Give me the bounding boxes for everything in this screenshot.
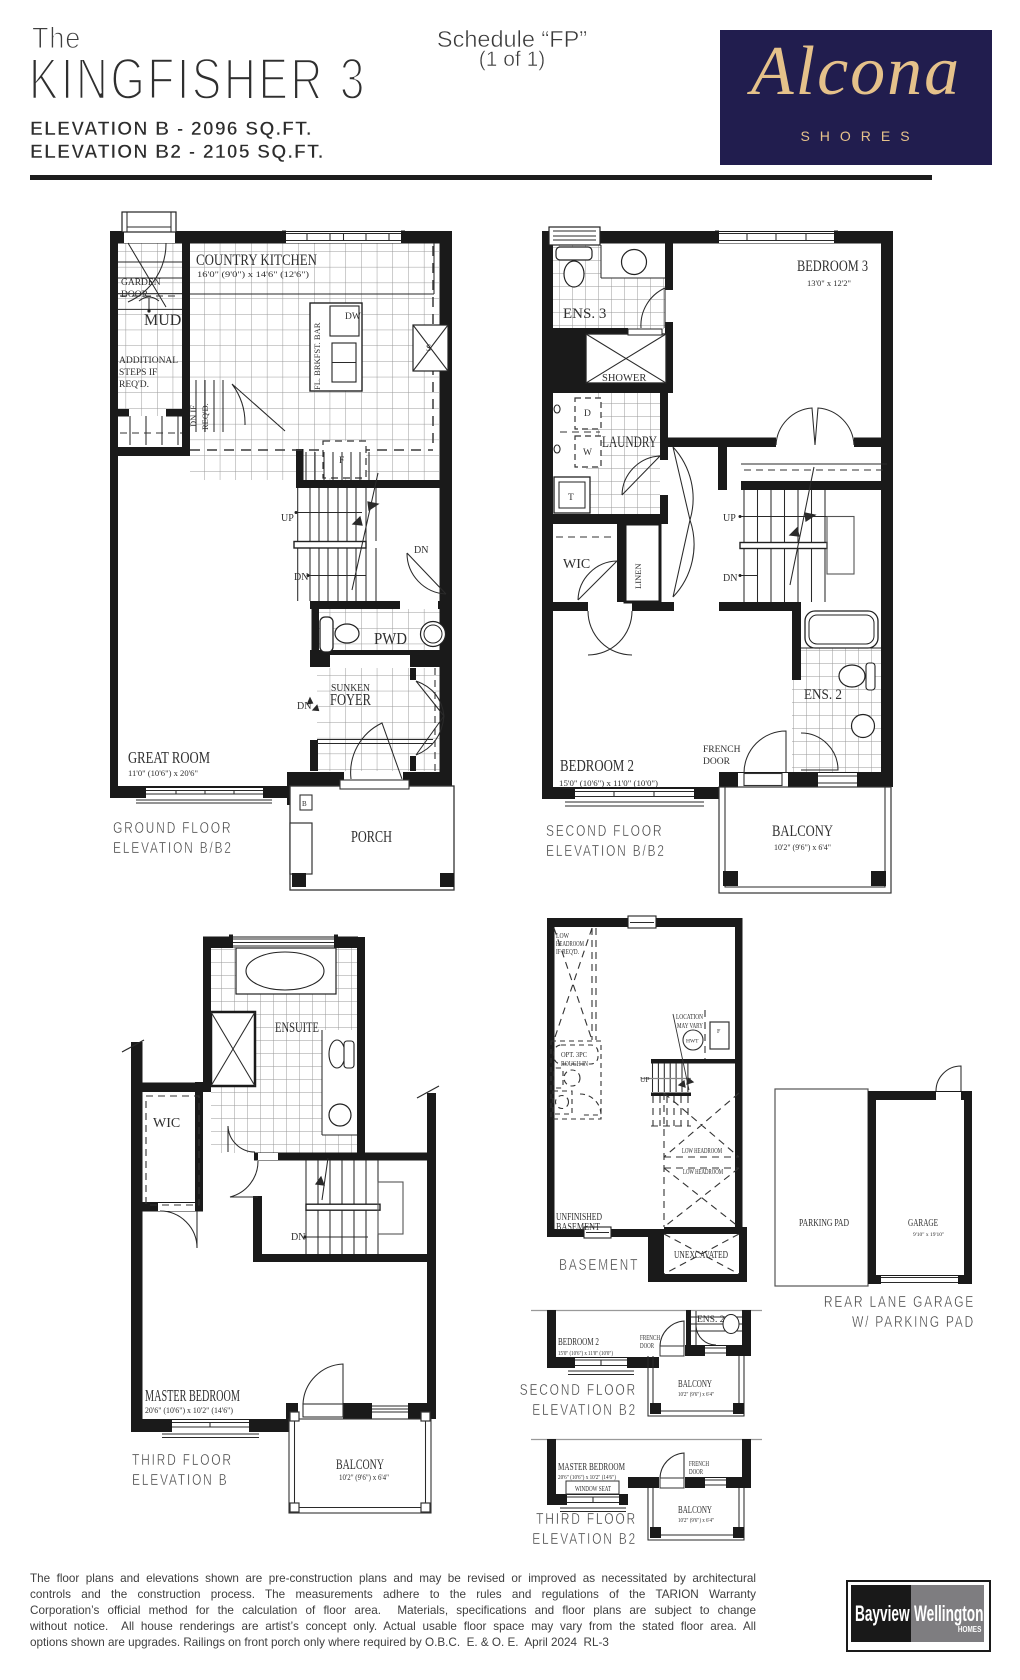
svg-text:9'10" x 19'10": 9'10" x 19'10"	[913, 1232, 944, 1238]
svg-text:T: T	[568, 493, 574, 503]
svg-text:BEDROOM 2: BEDROOM 2	[558, 1337, 599, 1348]
svg-text:10'2" (9'6") x 6'4": 10'2" (9'6") x 6'4"	[774, 842, 831, 852]
svg-text:ADDITIONAL: ADDITIONAL	[119, 356, 178, 366]
svg-text:PARKING PAD: PARKING PAD	[799, 1218, 849, 1229]
svg-text:UNEXCAVATED: UNEXCAVATED	[674, 1250, 728, 1261]
svg-text:B: B	[302, 800, 307, 808]
svg-text:HEADROOM: HEADROOM	[556, 940, 585, 948]
svg-text:SHOWER: SHOWER	[602, 373, 646, 384]
svg-text:OPT. 3PC: OPT. 3PC	[561, 1050, 587, 1059]
svg-text:DW: DW	[345, 312, 361, 322]
svg-text:WIC: WIC	[563, 557, 590, 572]
svg-text:20'6" (10'6") x 10'2" (14'6"): 20'6" (10'6") x 10'2" (14'6")	[145, 1405, 233, 1415]
svg-text:BALCONY: BALCONY	[678, 1379, 712, 1390]
svg-text:STEPS IF: STEPS IF	[119, 368, 157, 378]
svg-text:LOW HEADROOM: LOW HEADROOM	[682, 1146, 722, 1155]
svg-text:MASTER BEDROOM: MASTER BEDROOM	[558, 1462, 625, 1473]
svg-text:11'0" (10'6") x 20'6": 11'0" (10'6") x 20'6"	[128, 768, 198, 778]
svg-text:10'2" (9'6") x 6'4": 10'2" (9'6") x 6'4"	[339, 1473, 389, 1482]
svg-text:MASTER BEDROOM: MASTER BEDROOM	[145, 1386, 240, 1405]
svg-text:HWT: HWT	[686, 1039, 699, 1045]
svg-text:REQ'D.: REQ'D.	[119, 380, 149, 390]
svg-text:W: W	[583, 448, 592, 458]
svg-text:LOCATION: LOCATION	[676, 1012, 703, 1021]
svg-text:DOOR: DOOR	[640, 1342, 654, 1350]
svg-text:DN: DN	[294, 572, 308, 583]
svg-text:16'0" (9'0") x 14'6" (12'6"): 16'0" (9'0") x 14'6" (12'6")	[197, 269, 309, 279]
svg-text:FL. BRKFST. BAR: FL. BRKFST. BAR	[312, 322, 322, 390]
svg-text:BEDROOM 3: BEDROOM 3	[797, 258, 868, 275]
svg-text:LOW HEADROOM: LOW HEADROOM	[683, 1167, 723, 1176]
svg-text:D: D	[584, 409, 591, 419]
svg-text:DN: DN	[723, 573, 737, 584]
svg-text:WINDOW SEAT: WINDOW SEAT	[575, 1485, 612, 1493]
svg-text:13'0" x 12'2": 13'0" x 12'2"	[807, 278, 851, 288]
svg-text:UP: UP	[640, 1075, 650, 1084]
svg-text:DOOR: DOOR	[689, 1468, 703, 1476]
svg-text:IF REQ'D.: IF REQ'D.	[556, 948, 579, 956]
svg-text:10'2" (9'6") x 6'4": 10'2" (9'6") x 6'4"	[678, 1391, 714, 1398]
svg-text:COUNTRY KITCHEN: COUNTRY KITCHEN	[196, 252, 317, 269]
svg-text:LAUNDRY: LAUNDRY	[602, 434, 657, 451]
svg-text:REQ'D.: REQ'D.	[200, 403, 210, 430]
svg-text:ENSUITE: ENSUITE	[275, 1020, 319, 1036]
svg-text:LINEN: LINEN	[633, 564, 643, 590]
svg-text:FRENCH: FRENCH	[640, 1334, 660, 1342]
svg-text:20'6" (10'6") x 10'2" (14'6"): 20'6" (10'6") x 10'2" (14'6")	[558, 1474, 616, 1481]
svg-text:UP: UP	[723, 513, 736, 524]
svg-text:10'2" (9'6") x 6'4": 10'2" (9'6") x 6'4"	[678, 1517, 714, 1524]
svg-text:MAY VARY: MAY VARY	[677, 1021, 703, 1030]
svg-text:DN IF: DN IF	[188, 405, 198, 427]
svg-text:ENS. 2: ENS. 2	[697, 1315, 725, 1325]
svg-text:FRENCH: FRENCH	[703, 745, 741, 755]
svg-text:FOYER: FOYER	[330, 690, 371, 709]
svg-text:BALCONY: BALCONY	[678, 1505, 712, 1516]
svg-text:BALCONY: BALCONY	[336, 1457, 384, 1473]
svg-text:ENS. 3: ENS. 3	[563, 306, 606, 322]
svg-text:DN: DN	[291, 1232, 305, 1243]
svg-text:BASEMENT: BASEMENT	[556, 1222, 600, 1233]
svg-text:LOW: LOW	[556, 932, 569, 940]
svg-text:WIC: WIC	[153, 1116, 180, 1131]
svg-text:ENS. 2: ENS. 2	[804, 687, 842, 703]
svg-text:15'0" (10'6") x 11'0" (10'0"): 15'0" (10'6") x 11'0" (10'0")	[559, 778, 658, 788]
svg-text:FRENCH: FRENCH	[689, 1460, 709, 1468]
svg-text:F: F	[339, 456, 344, 466]
svg-text:15'0" (10'6") x 11'0" (10'0"): 15'0" (10'6") x 11'0" (10'0")	[558, 1350, 613, 1357]
svg-text:PWD: PWD	[374, 629, 407, 648]
svg-text:DOOR: DOOR	[121, 290, 149, 300]
svg-text:BALCONY: BALCONY	[772, 823, 833, 840]
svg-text:DOOR: DOOR	[703, 757, 731, 767]
svg-text:MUD: MUD	[144, 312, 181, 329]
svg-text:GARDEN: GARDEN	[121, 278, 161, 288]
svg-text:GREAT ROOM: GREAT ROOM	[128, 748, 210, 767]
svg-text:ROUGH IN: ROUGH IN	[561, 1059, 588, 1068]
svg-text:DN: DN	[414, 545, 428, 556]
svg-text:UP: UP	[281, 513, 294, 524]
svg-text:PORCH: PORCH	[351, 827, 392, 846]
svg-text:S: S	[426, 344, 431, 354]
svg-text:BEDROOM 2: BEDROOM 2	[560, 756, 634, 775]
svg-text:GARAGE: GARAGE	[908, 1218, 938, 1229]
